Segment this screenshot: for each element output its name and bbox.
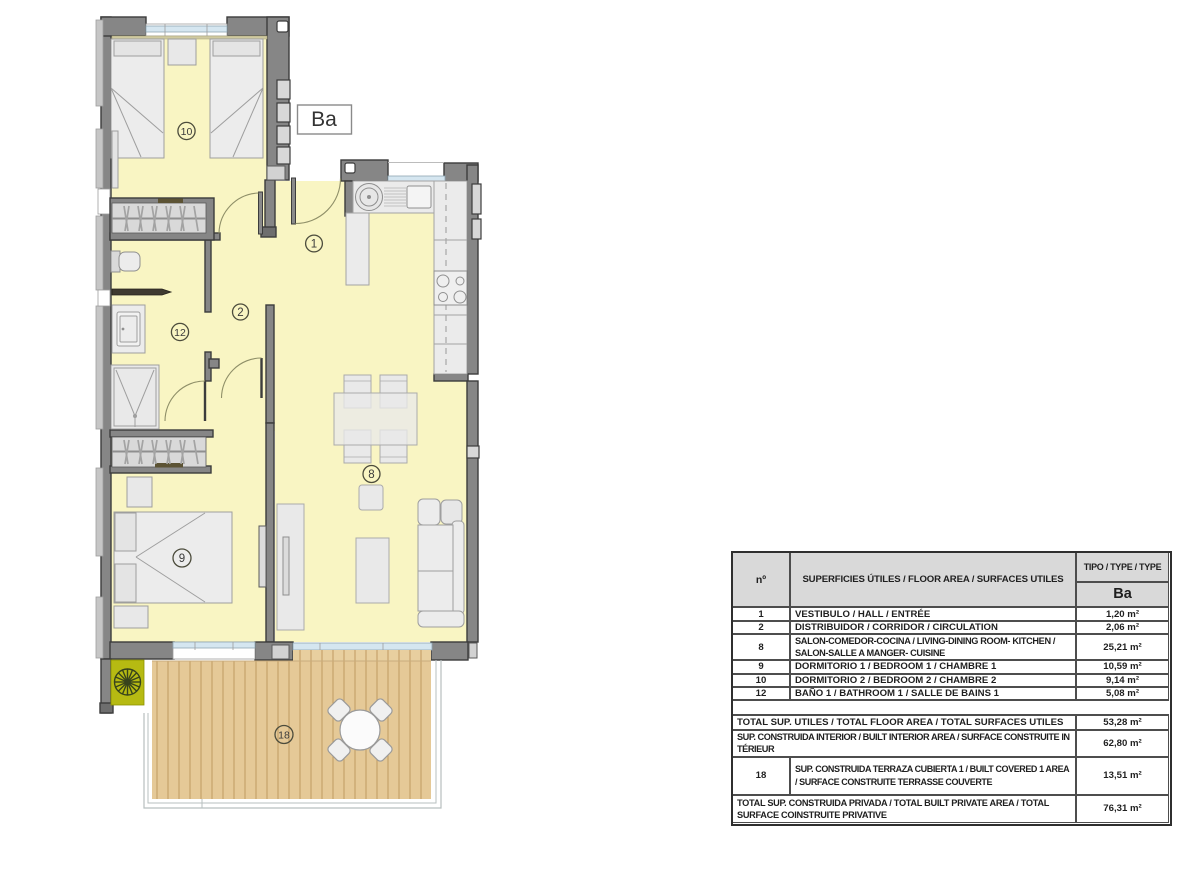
svg-text:10: 10 [181,126,193,138]
svg-text:1: 1 [311,239,317,251]
svg-text:2: 2 [237,307,243,319]
svg-text:8: 8 [368,469,374,481]
svg-text:Ba: Ba [311,108,337,131]
svg-text:18: 18 [278,730,290,742]
svg-text:9: 9 [179,553,185,565]
svg-text:12: 12 [174,327,186,339]
